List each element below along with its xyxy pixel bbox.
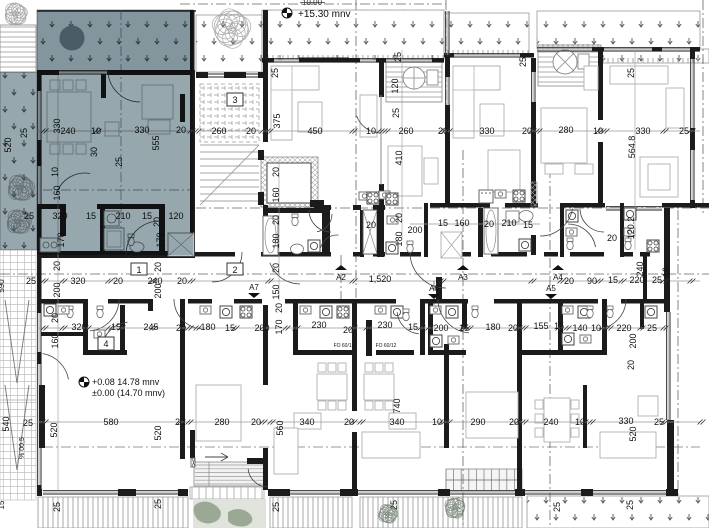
svg-text:20: 20 <box>153 262 163 272</box>
svg-text:±0.00 (14.70 mnv): ±0.00 (14.70 mnv) <box>92 388 165 398</box>
svg-text:+15.30 mnv: +15.30 mnv <box>298 9 351 20</box>
svg-text:25: 25 <box>626 68 636 78</box>
svg-text:200: 200 <box>628 333 638 348</box>
svg-text:320: 320 <box>70 276 85 286</box>
svg-text:180: 180 <box>485 322 500 332</box>
svg-text:520: 520 <box>49 422 59 437</box>
svg-text:15: 15 <box>111 322 121 332</box>
svg-text:20: 20 <box>271 263 281 273</box>
svg-text:220: 220 <box>616 323 631 333</box>
svg-text:20: 20 <box>52 261 62 271</box>
svg-text:25: 25 <box>23 418 33 428</box>
svg-text:A2: A2 <box>336 273 346 282</box>
svg-text:520: 520 <box>628 426 638 441</box>
svg-text:20: 20 <box>271 215 281 225</box>
svg-text:20: 20 <box>343 325 353 335</box>
svg-text:15: 15 <box>438 218 448 228</box>
svg-text:3: 3 <box>232 95 237 105</box>
svg-text:20: 20 <box>274 303 284 313</box>
svg-text:180: 180 <box>271 233 281 248</box>
svg-text:20: 20 <box>271 167 281 177</box>
svg-text:20: 20 <box>508 323 518 333</box>
svg-text:280: 280 <box>558 125 573 135</box>
svg-text:10: 10 <box>661 267 671 277</box>
svg-text:20: 20 <box>509 417 519 427</box>
svg-text:260: 260 <box>211 126 226 136</box>
svg-text:25: 25 <box>271 502 281 512</box>
svg-text:A5: A5 <box>546 284 556 293</box>
svg-text:230: 230 <box>377 320 392 330</box>
svg-text:10: 10 <box>591 323 601 333</box>
svg-text:A4: A4 <box>553 273 563 282</box>
svg-text:25: 25 <box>52 502 62 512</box>
svg-text:10.00: 10.00 <box>302 0 323 7</box>
svg-text:20: 20 <box>394 213 404 223</box>
svg-text:15: 15 <box>225 323 235 333</box>
svg-text:FO 60/12: FO 60/12 <box>334 343 355 349</box>
svg-text:A3: A3 <box>458 273 468 282</box>
svg-text:25: 25 <box>26 276 36 286</box>
svg-text:20: 20 <box>113 276 123 286</box>
svg-text:20: 20 <box>177 276 187 286</box>
svg-text:230: 230 <box>311 320 326 330</box>
svg-text:25: 25 <box>518 57 528 67</box>
svg-text:20: 20 <box>176 323 186 333</box>
svg-text:330: 330 <box>479 126 494 136</box>
svg-text:340: 340 <box>299 417 314 427</box>
svg-text:245: 245 <box>143 322 158 332</box>
svg-text:120.2: 120.2 <box>626 217 636 240</box>
svg-text:140: 140 <box>572 323 587 333</box>
svg-text:330: 330 <box>618 416 633 426</box>
svg-text:200: 200 <box>153 283 163 298</box>
svg-text:15: 15 <box>608 275 618 285</box>
svg-text:20: 20 <box>344 417 354 427</box>
svg-text:25: 25 <box>389 500 399 510</box>
svg-text:290: 290 <box>470 417 485 427</box>
svg-text:20: 20 <box>366 220 376 230</box>
svg-text:160: 160 <box>50 333 60 348</box>
svg-text:450: 450 <box>307 126 322 136</box>
svg-text:20: 20 <box>251 417 261 427</box>
svg-text:15: 15 <box>408 322 418 332</box>
svg-text:25: 25 <box>270 68 280 78</box>
svg-text:15: 15 <box>523 220 533 230</box>
svg-text:15: 15 <box>459 323 469 333</box>
svg-text:560: 560 <box>275 420 285 435</box>
svg-text:740: 740 <box>392 398 402 413</box>
svg-text:375: 375 <box>272 113 282 128</box>
svg-text:20: 20 <box>626 360 636 370</box>
svg-text:155: 155 <box>533 321 548 331</box>
svg-text:25: 25 <box>647 323 657 333</box>
svg-text:25: 25 <box>391 108 401 118</box>
svg-text:200: 200 <box>407 225 422 235</box>
svg-text:90: 90 <box>587 276 597 286</box>
svg-text:20: 20 <box>175 417 185 427</box>
svg-text:240: 240 <box>635 261 645 276</box>
svg-text:4: 4 <box>103 339 108 349</box>
svg-text:180: 180 <box>394 231 404 246</box>
svg-text:280: 280 <box>214 417 229 427</box>
svg-text:25: 25 <box>679 126 689 136</box>
svg-text:15: 15 <box>554 321 564 331</box>
svg-text:20: 20 <box>484 219 494 229</box>
svg-text:15: 15 <box>0 500 6 509</box>
svg-text:20: 20 <box>564 276 574 286</box>
svg-text:330: 330 <box>635 126 650 136</box>
svg-text:25: 25 <box>153 499 163 509</box>
svg-text:25: 25 <box>552 502 562 512</box>
svg-text:160: 160 <box>271 187 281 202</box>
svg-text:25: 25 <box>625 500 635 510</box>
svg-text:210: 210 <box>501 218 516 228</box>
svg-text:1,520: 1,520 <box>369 274 392 284</box>
svg-text:FO 60/12: FO 60/12 <box>376 343 397 349</box>
svg-text:540: 540 <box>1 416 11 431</box>
svg-text:10: 10 <box>593 126 603 136</box>
svg-text:1: 1 <box>136 265 141 275</box>
svg-text:150: 150 <box>271 284 281 299</box>
svg-text:120: 120 <box>390 78 400 93</box>
svg-text:+0.08 14.78 mnv: +0.08 14.78 mnv <box>92 377 160 387</box>
svg-text:A6: A6 <box>429 284 439 293</box>
svg-text:2: 2 <box>232 265 237 275</box>
svg-text:20: 20 <box>438 126 448 136</box>
svg-text:20: 20 <box>50 313 60 323</box>
svg-text:260: 260 <box>398 126 413 136</box>
svg-text:20: 20 <box>607 233 617 243</box>
svg-text:520: 520 <box>153 425 163 440</box>
svg-text:590: 590 <box>0 279 6 293</box>
svg-text:240: 240 <box>543 417 558 427</box>
svg-text:20: 20 <box>522 126 532 136</box>
svg-text:25: 25 <box>654 417 664 427</box>
svg-text:200: 200 <box>433 323 448 333</box>
svg-text:25: 25 <box>393 52 403 62</box>
svg-text:10: 10 <box>575 417 585 427</box>
svg-text:200: 200 <box>52 282 62 297</box>
svg-text:320: 320 <box>71 322 86 332</box>
svg-text:410: 410 <box>394 150 404 165</box>
svg-text:% 00,5: % 00,5 <box>19 437 26 459</box>
svg-text:340: 340 <box>389 417 404 427</box>
svg-text:580: 580 <box>103 417 118 427</box>
svg-text:10: 10 <box>432 417 442 427</box>
svg-text:200: 200 <box>254 323 269 333</box>
svg-text:170: 170 <box>274 319 284 334</box>
svg-text:180: 180 <box>200 322 215 332</box>
svg-text:160: 160 <box>454 218 469 228</box>
svg-text:A7: A7 <box>249 283 259 292</box>
svg-text:564.8: 564.8 <box>627 136 637 159</box>
svg-text:10: 10 <box>366 126 376 136</box>
svg-text:20: 20 <box>246 126 256 136</box>
